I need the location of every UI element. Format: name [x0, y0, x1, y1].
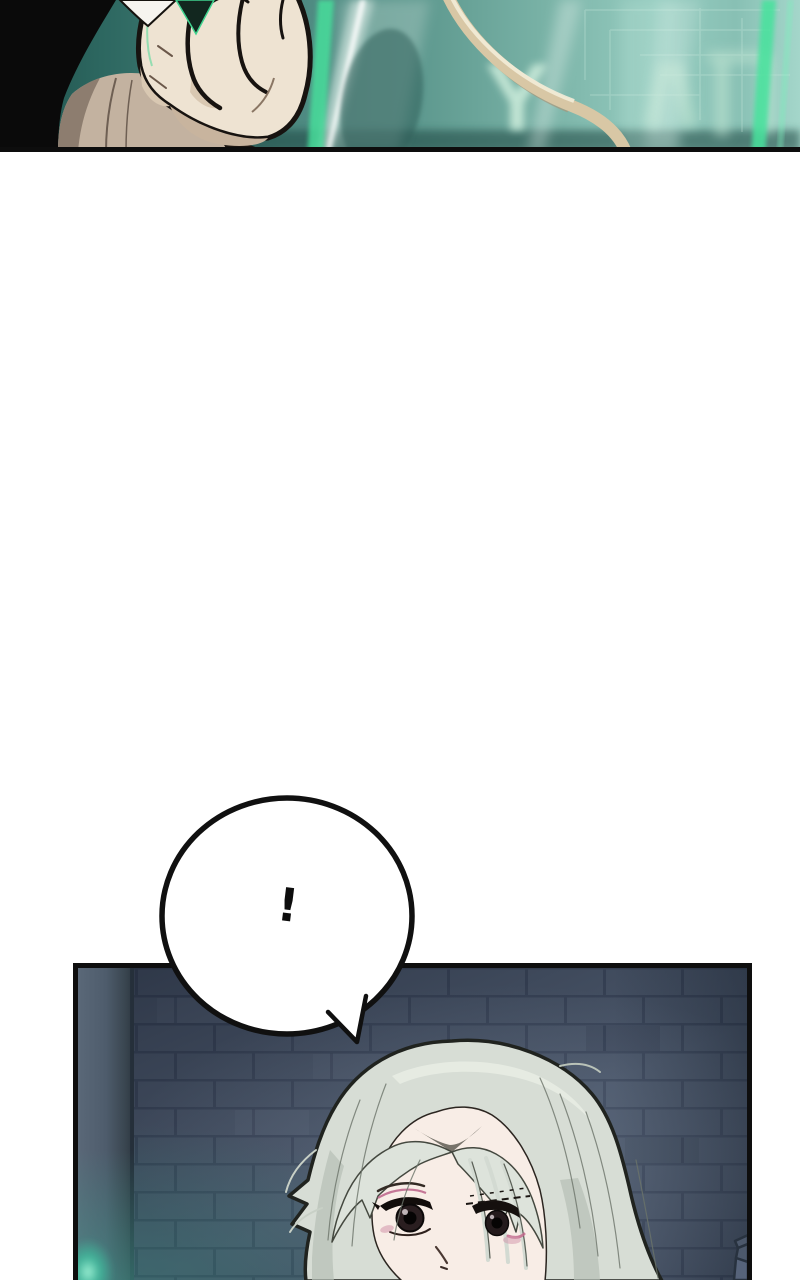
exclamation-text: !	[265, 880, 310, 931]
panel-top-art: Y	[0, 0, 800, 152]
wall-ledge	[734, 1235, 747, 1280]
wall-pillar	[78, 968, 134, 1280]
panel-top-action: Y	[0, 0, 800, 152]
comic-page: Y	[0, 0, 800, 1280]
speech-bubble: !	[150, 788, 430, 1054]
